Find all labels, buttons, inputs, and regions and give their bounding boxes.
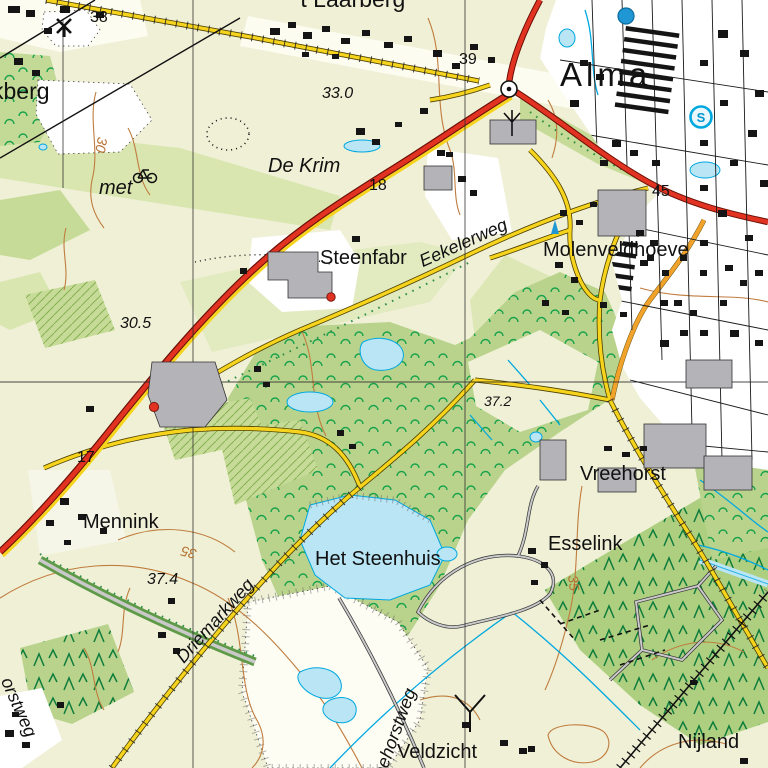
building (500, 740, 508, 746)
building (680, 255, 687, 261)
building (254, 366, 261, 372)
building (57, 702, 64, 708)
building (700, 60, 708, 66)
building (740, 50, 749, 57)
building (647, 255, 654, 261)
building (32, 70, 40, 76)
building (384, 42, 393, 48)
building (630, 150, 638, 156)
building (571, 277, 578, 283)
building (263, 382, 270, 387)
building (640, 446, 647, 451)
building (542, 300, 549, 306)
water-tower-icon (618, 8, 634, 24)
building (356, 128, 365, 135)
building (650, 240, 658, 246)
building (341, 38, 350, 44)
building (470, 190, 477, 196)
building (730, 160, 738, 166)
building (352, 236, 360, 242)
building (660, 340, 669, 347)
map-canvas: S (0, 0, 768, 768)
building (740, 280, 747, 286)
building (662, 270, 669, 276)
building (748, 130, 757, 137)
building (680, 330, 688, 336)
building (725, 265, 733, 271)
building (270, 28, 280, 35)
roundabout-icon (501, 81, 517, 97)
svg-text:S: S (697, 110, 706, 125)
building (674, 300, 682, 306)
building (458, 176, 466, 182)
swimming-pool-icon: S (691, 107, 712, 128)
building (96, 12, 104, 18)
building (240, 268, 247, 274)
building (349, 444, 356, 449)
building (690, 310, 697, 316)
building (636, 230, 644, 236)
building (755, 90, 764, 97)
building (14, 58, 23, 65)
building (302, 52, 309, 57)
building (640, 260, 648, 266)
building (755, 340, 763, 346)
chimney-icon-2 (149, 402, 158, 411)
building (604, 446, 612, 451)
building (488, 57, 495, 63)
building (44, 28, 52, 34)
building (372, 139, 380, 145)
building (337, 430, 344, 436)
building (622, 452, 630, 457)
building (173, 648, 180, 654)
building (288, 22, 296, 28)
building (528, 746, 535, 752)
building (576, 220, 583, 225)
building (755, 270, 763, 276)
building (437, 150, 445, 156)
building (404, 36, 412, 42)
building (395, 122, 402, 127)
building (100, 528, 107, 534)
building (64, 540, 71, 545)
building (86, 406, 94, 412)
building (60, 6, 70, 13)
building (600, 302, 607, 308)
building (78, 514, 86, 520)
building (332, 54, 339, 59)
building (730, 330, 739, 337)
building (60, 498, 69, 505)
chimney-icon (327, 293, 335, 301)
building (690, 680, 697, 685)
building (528, 548, 536, 554)
building (720, 100, 728, 106)
building (519, 748, 527, 754)
building (46, 520, 54, 526)
building (362, 30, 370, 36)
building (700, 185, 708, 191)
grey-building (704, 456, 752, 490)
building (612, 140, 621, 147)
building (700, 270, 707, 276)
topographic-map: S kberg38't Laarberg39Alma33.030De Krimm… (0, 0, 768, 768)
building (596, 74, 604, 80)
building (718, 210, 727, 217)
grey-building (598, 190, 646, 236)
building (555, 262, 563, 268)
building (433, 50, 442, 57)
building (22, 742, 30, 748)
building (760, 180, 768, 187)
building (720, 300, 727, 306)
building (303, 32, 312, 39)
grey-building (490, 120, 536, 144)
building (660, 300, 668, 306)
building (718, 30, 728, 38)
building (570, 100, 579, 107)
building (740, 758, 748, 764)
building (580, 60, 588, 66)
building (420, 108, 428, 114)
building (446, 152, 453, 157)
building (700, 240, 708, 246)
grey-building (540, 440, 566, 480)
building (531, 580, 538, 585)
building (470, 44, 478, 50)
building (700, 330, 708, 336)
grey-building (644, 424, 706, 468)
grey-building (686, 360, 732, 388)
grey-building (424, 166, 452, 190)
building (12, 712, 19, 717)
building (745, 235, 753, 241)
building (322, 26, 330, 32)
building (700, 140, 708, 146)
building (168, 598, 175, 604)
building (452, 63, 460, 69)
building (158, 632, 166, 638)
building (590, 202, 597, 207)
building (462, 722, 469, 728)
building (620, 312, 627, 317)
building (541, 562, 548, 568)
building (5, 730, 14, 737)
grey-building (598, 468, 636, 492)
building (652, 160, 660, 166)
building (26, 10, 35, 17)
building (562, 310, 569, 315)
building (600, 160, 608, 166)
building (560, 210, 567, 216)
building (8, 6, 20, 13)
